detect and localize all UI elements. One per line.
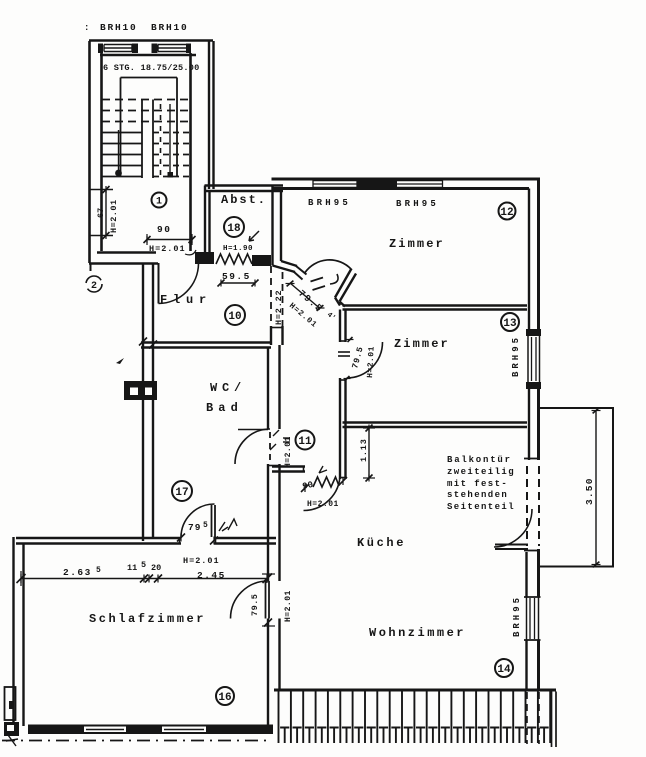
svg-text:16: 16 (218, 692, 231, 704)
svg-text:BRH95: BRH95 (512, 595, 522, 637)
svg-text:5: 5 (96, 566, 101, 575)
svg-text:WC/: WC/ (210, 381, 246, 395)
svg-text:Abst.: Abst. (221, 193, 267, 207)
svg-text:59.5: 59.5 (222, 271, 251, 282)
svg-text:13: 13 (503, 318, 517, 330)
svg-text:BRH95: BRH95 (511, 335, 521, 377)
svg-text::: : (84, 23, 89, 33)
svg-text:14: 14 (497, 664, 511, 676)
svg-text:Küche: Küche (357, 536, 406, 550)
svg-text:10: 10 (228, 311, 241, 323)
svg-text:1: 1 (156, 197, 162, 208)
svg-text:Zimmer: Zimmer (394, 337, 450, 351)
svg-text:Seitenteil: Seitenteil (447, 502, 515, 512)
svg-text:stehenden: stehenden (447, 490, 508, 500)
svg-text:Bad: Bad (206, 401, 243, 415)
svg-text:H=2.01: H=2.01 (109, 199, 119, 233)
svg-text:18: 18 (227, 223, 241, 235)
svg-text:12: 12 (500, 207, 513, 219)
svg-text:6 STG. 18.75/25.00: 6 STG. 18.75/25.00 (103, 63, 199, 73)
svg-text:3.50: 3.50 (584, 477, 595, 505)
svg-text:H=2.01: H=2.01 (307, 500, 339, 509)
svg-text:17: 17 (175, 487, 188, 499)
svg-text:Zimmer: Zimmer (389, 237, 445, 251)
svg-text:BRH10: BRH10 (151, 22, 189, 33)
svg-text:H=2.01: H=2.01 (149, 244, 186, 254)
svg-text:5: 5 (203, 521, 208, 530)
svg-text:BRH10: BRH10 (100, 22, 138, 33)
svg-text:67: 67 (96, 208, 106, 218)
svg-text:H=2.01: H=2.01 (366, 346, 377, 378)
svg-text:11: 11 (127, 563, 137, 573)
svg-text:BRH95: BRH95 (308, 198, 351, 208)
svg-text:79.5: 79.5 (250, 594, 260, 616)
svg-text:H=1.90: H=1.90 (223, 245, 253, 253)
svg-text:H=2.22: H=2.22 (274, 290, 284, 325)
svg-text:2.63: 2.63 (63, 567, 92, 578)
svg-text:H=2.01: H=2.01 (284, 436, 293, 468)
svg-text:1.13: 1.13 (359, 438, 369, 462)
svg-text:mit fest-: mit fest- (447, 479, 508, 489)
svg-text:5: 5 (141, 560, 146, 570)
svg-text:Wohnzimmer: Wohnzimmer (369, 626, 466, 640)
svg-text:BRH95: BRH95 (396, 199, 439, 209)
svg-text:H=2.01: H=2.01 (284, 590, 293, 622)
svg-text:H=2.01: H=2.01 (183, 556, 220, 566)
svg-text:zweiteilig: zweiteilig (447, 467, 515, 477)
svg-text:11: 11 (298, 436, 312, 448)
svg-text:20: 20 (151, 563, 161, 573)
svg-text:2.45: 2.45 (197, 570, 226, 581)
svg-text:Balkontür: Balkontür (447, 455, 512, 465)
svg-text:2: 2 (91, 281, 97, 292)
svg-text:90: 90 (157, 224, 171, 235)
svg-text:Schlafzimmer: Schlafzimmer (89, 612, 206, 626)
svg-text:79: 79 (188, 522, 201, 533)
svg-text:Flur: Flur (160, 293, 212, 307)
